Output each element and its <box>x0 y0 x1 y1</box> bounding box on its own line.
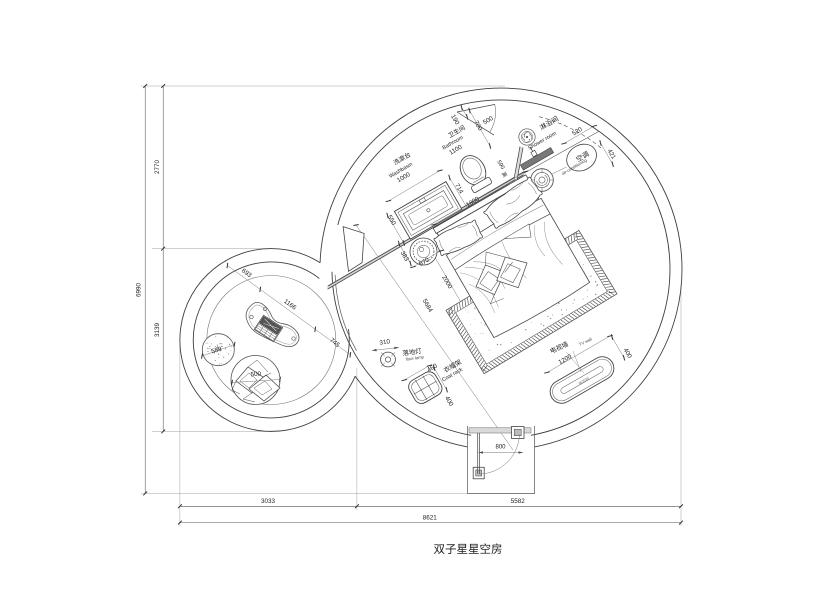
svg-text:2770: 2770 <box>154 160 161 175</box>
svg-text:500: 500 <box>250 371 262 379</box>
svg-text:3139: 3139 <box>154 323 161 338</box>
svg-text:5582: 5582 <box>511 498 526 505</box>
svg-text:8621: 8621 <box>423 515 438 522</box>
svg-text:3033: 3033 <box>261 498 276 505</box>
svg-text:6990: 6990 <box>136 283 143 298</box>
svg-text:800: 800 <box>495 445 506 451</box>
